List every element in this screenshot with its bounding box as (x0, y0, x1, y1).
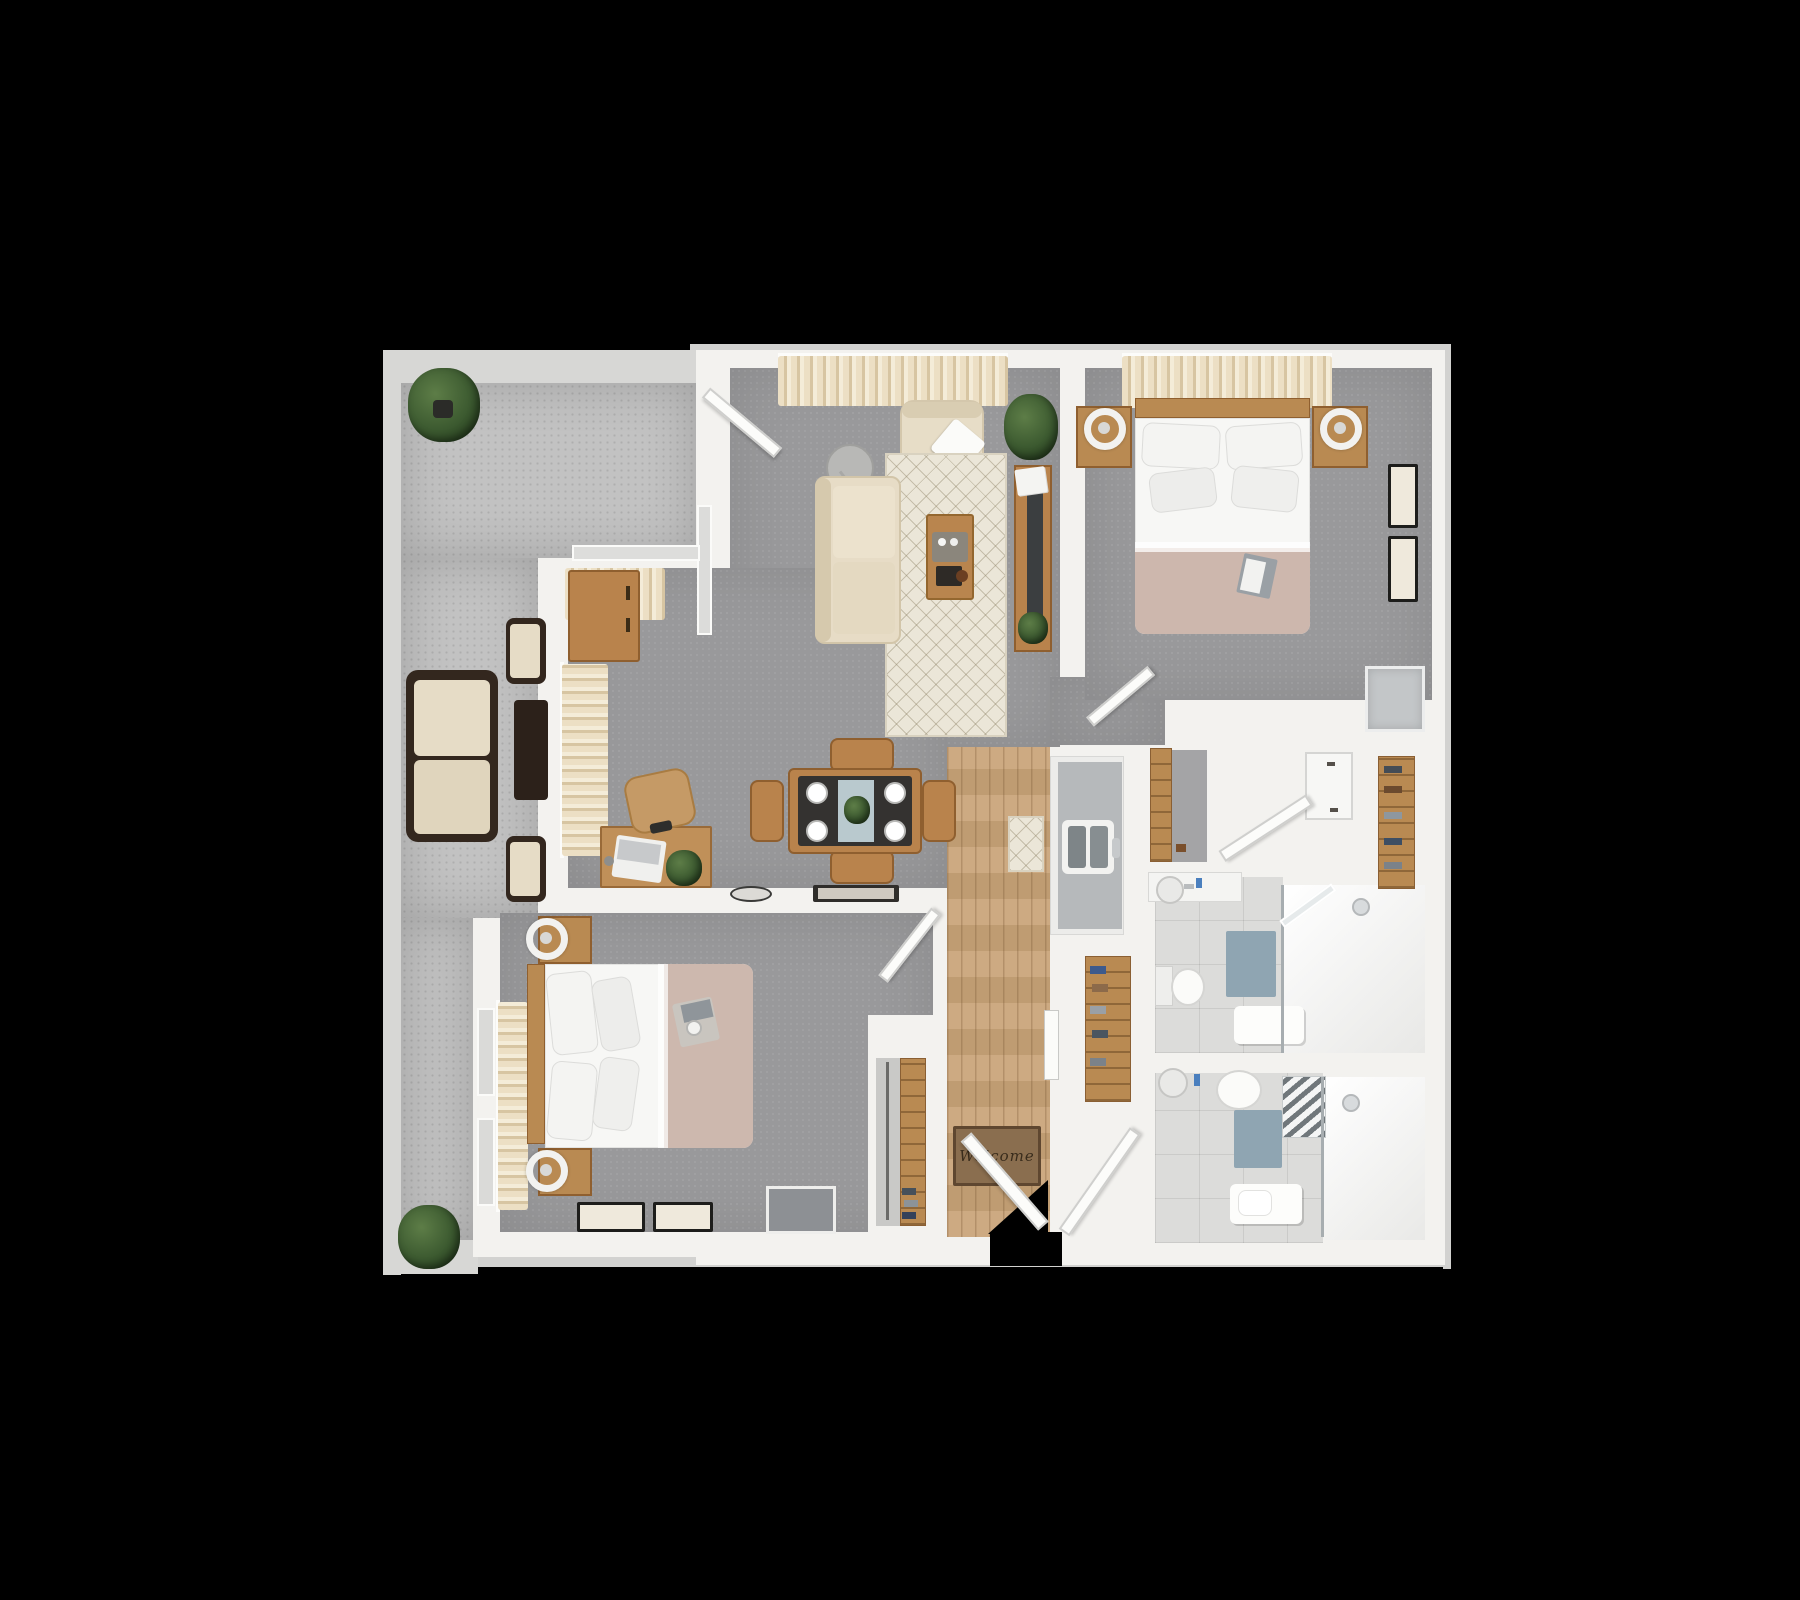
hall-cabinet-handle-2 (1330, 808, 1338, 812)
kitchen-rug (1008, 816, 1044, 872)
dining-plate-4 (884, 820, 906, 842)
entry-closet-shoe-4 (1092, 1030, 1108, 1038)
br1-floor-mat (766, 1186, 836, 1234)
lr-west-window-glass (697, 505, 712, 635)
den-dresser-handle-1 (626, 586, 630, 600)
lr-tray-cup-2 (950, 538, 958, 546)
lr-console-magazines (1014, 466, 1047, 496)
dining-plate-3 (884, 782, 906, 804)
bath1-bench (1234, 1006, 1304, 1044)
bath1-sink (1156, 876, 1184, 904)
hall-shoe-2 (1384, 786, 1402, 793)
entry-closet-shoe-1 (1090, 966, 1106, 974)
balcony-plant-pot (433, 400, 453, 418)
den-desk-mug (604, 856, 614, 866)
br1-pillow-2 (546, 1060, 599, 1142)
balcony-floor-strip-lower (401, 918, 473, 1240)
bath2-mat (1234, 1110, 1282, 1168)
hall-shoe-5 (1384, 862, 1402, 869)
dining-chair-right (922, 780, 956, 842)
lr-console-plant (1018, 612, 1048, 644)
lr-armchair-back (902, 402, 982, 418)
entry-closet-shoe-5 (1090, 1058, 1106, 1066)
br2-duvet (1135, 548, 1310, 634)
br1-closet-rod (886, 1062, 889, 1220)
br1-tray-mug (686, 1020, 702, 1036)
br1-window-glass-2 (477, 1118, 495, 1206)
br2-headboard (1135, 398, 1310, 418)
bath1-soap (1196, 878, 1202, 888)
br2-lamp-left-bulb (1098, 422, 1110, 434)
dining-chair-top (830, 738, 894, 772)
br1-art-frame-1 (577, 1202, 645, 1232)
lr-sofa-back (815, 478, 831, 642)
entry-closet-door (1044, 1010, 1059, 1080)
bath2-bench-towel (1238, 1190, 1272, 1216)
bath1-mat (1226, 931, 1276, 997)
closet1-item (1176, 844, 1186, 852)
entry-closet-shoe-2 (1092, 984, 1108, 992)
patio-sofa-cushion-top (414, 680, 490, 756)
dining-plate-2 (806, 820, 828, 842)
floorplan-stage: Welcome (0, 0, 1800, 1600)
hall-shoe-3 (1384, 812, 1402, 819)
shower2-glass (1321, 1077, 1324, 1237)
lr-tray-cup-1 (938, 538, 946, 546)
lr-sofa-cushion-1 (833, 486, 895, 558)
br2-dresser (1365, 666, 1425, 732)
br2-pillow-4 (1230, 465, 1300, 514)
lr-sofa-cushion-2 (833, 562, 895, 634)
front-door-opening (990, 1232, 1062, 1266)
den-step-window-glass (572, 545, 700, 561)
lr-wall-plant (1004, 394, 1058, 460)
br2-art-frame-2 (1388, 536, 1418, 602)
br2-lamp-right-bulb (1334, 422, 1346, 434)
br1-closet-shoe-2 (904, 1200, 918, 1207)
br2-pillow-2 (1225, 421, 1304, 470)
bath2-sink (1158, 1068, 1188, 1098)
br1-closet-shoe-3 (902, 1212, 916, 1219)
shower2-floor (1323, 1077, 1425, 1240)
br1-window-glass-1 (477, 1008, 495, 1096)
bath1-toilet-bowl (1171, 968, 1205, 1006)
br1-duvet (664, 964, 753, 1148)
hall-shoe-1 (1384, 766, 1402, 773)
kitchen-sink-basin-right (1090, 826, 1108, 868)
patio-chair-top-cushion (510, 624, 540, 678)
dining-chair-left (750, 780, 784, 842)
lr-coffee-table-tray (932, 532, 968, 562)
dining-plate-1 (806, 782, 828, 804)
br1-art-frame-2 (653, 1202, 713, 1232)
den-desk-plant (666, 850, 702, 886)
bath2-towels (1282, 1076, 1326, 1138)
bath2-soap (1194, 1074, 1200, 1086)
balcony-wall-left (383, 350, 401, 1275)
lr-curtains (778, 356, 1008, 406)
br1-duvet-fold (658, 964, 668, 1148)
br1-closet-shoe-1 (902, 1188, 916, 1195)
shower1-head (1352, 898, 1370, 916)
kitchen-sink-basin-left (1068, 826, 1086, 868)
br2-pillow-1 (1141, 422, 1221, 470)
br1-lamp-top-bulb (540, 932, 552, 944)
dining-centerpiece-plant (844, 796, 870, 824)
br1-curtains (498, 1002, 528, 1210)
br2-pillow-3 (1148, 466, 1218, 514)
shower2-head (1342, 1094, 1360, 1112)
hall-cabinet-handle-1 (1327, 762, 1335, 766)
dining-chair-bottom (830, 850, 894, 884)
shower1-glass (1281, 885, 1284, 1053)
lr-coffee-table-knob (956, 570, 968, 582)
balcony-plant-small (398, 1205, 460, 1269)
br1-pillow-1 (545, 970, 599, 1056)
patio-coffee-table (514, 700, 548, 800)
br1-headboard (527, 964, 545, 1144)
patio-chair-bottom-cushion (510, 842, 540, 896)
ledge-tray-inner (818, 888, 894, 899)
entry-closet-shoe-3 (1090, 1006, 1106, 1014)
den-dresser-handle-2 (626, 618, 630, 632)
br2-duvet-fold (1135, 542, 1310, 552)
br1-lamp-bottom-bulb (540, 1164, 552, 1176)
closet1-shelf (1150, 748, 1172, 862)
bath2-toilet-bowl (1216, 1070, 1262, 1110)
kitchen-faucet (1112, 838, 1120, 858)
entry-closet-shelf (1085, 956, 1131, 1102)
patio-sofa-cushion-bottom (414, 760, 490, 834)
hall-shoe-shelf (1378, 756, 1415, 889)
ledge-plate (730, 886, 772, 902)
hall-shoe-4 (1384, 838, 1402, 845)
bath1-faucet (1184, 884, 1194, 889)
br2-art-frame-1 (1388, 464, 1418, 528)
den-dresser (568, 570, 640, 662)
